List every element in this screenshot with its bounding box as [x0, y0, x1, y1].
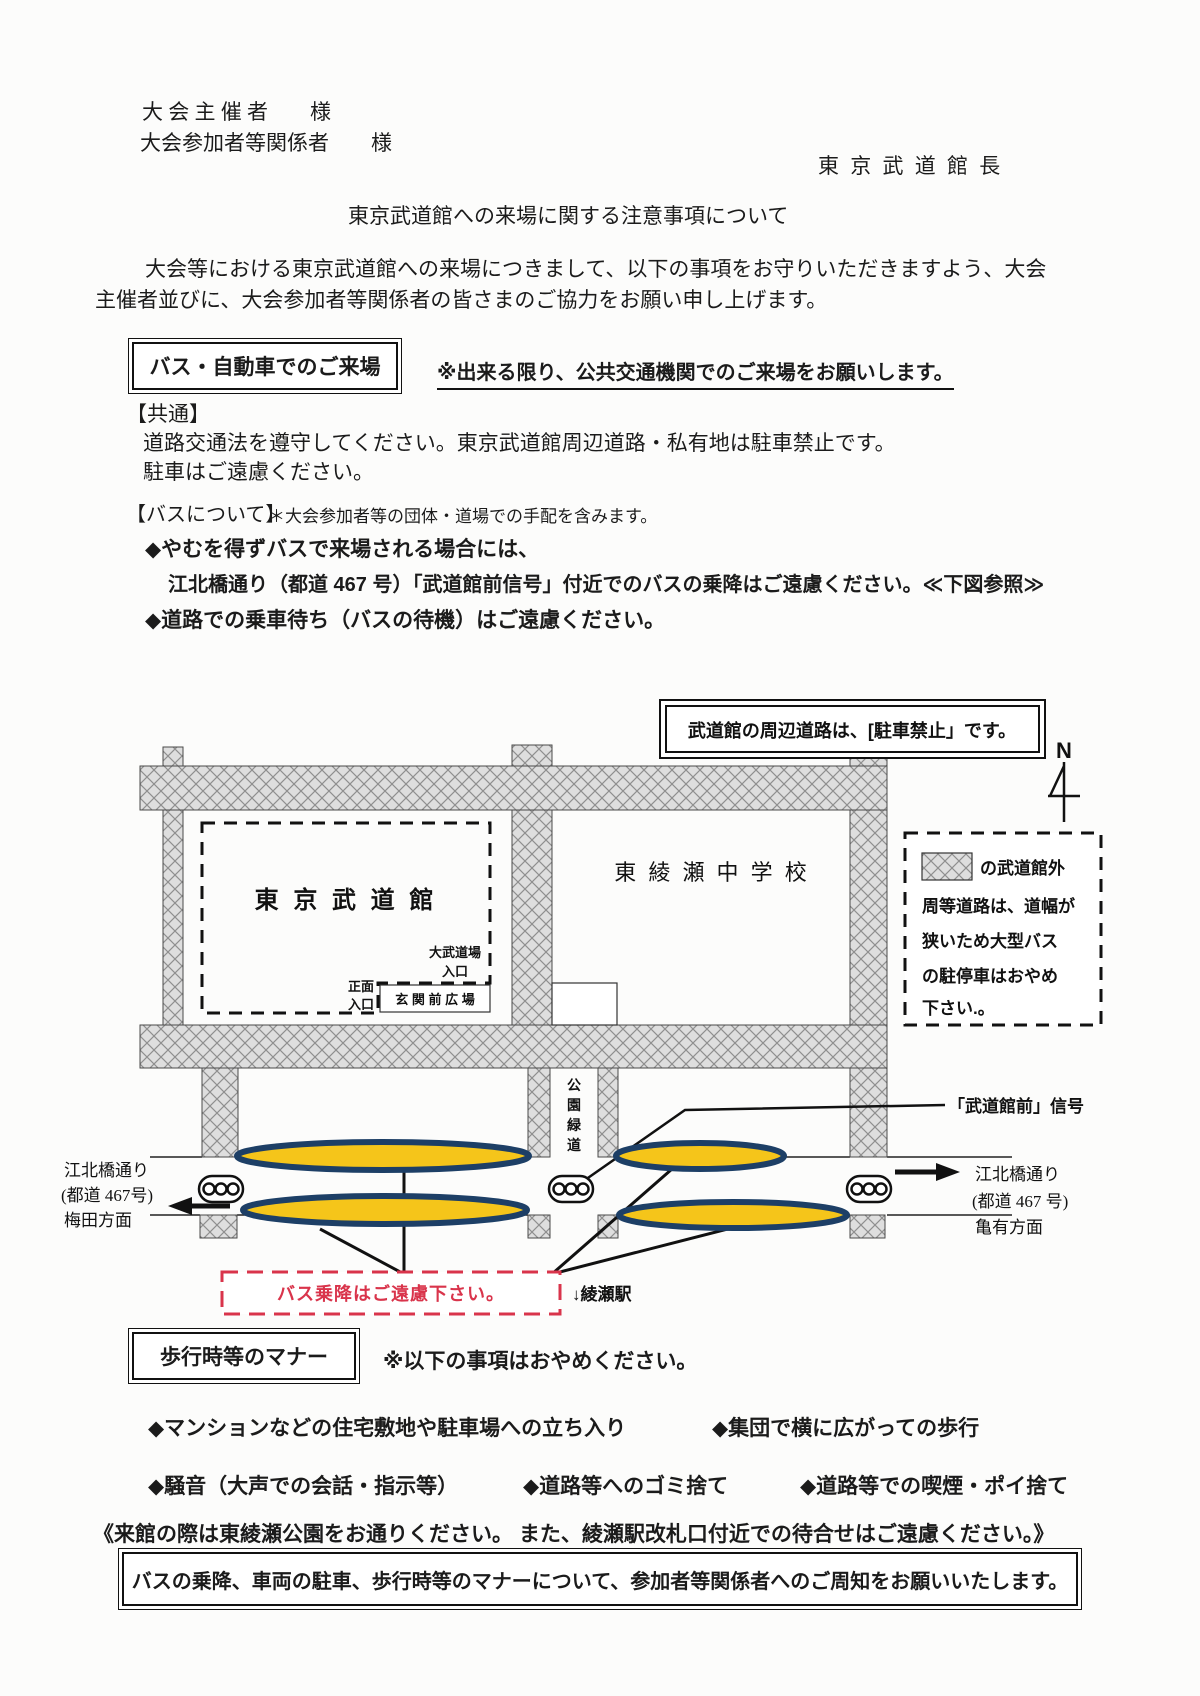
- dai-budojo-entrance-label: 大武道場: [429, 945, 481, 960]
- park-route-note: 《来館の際は東綾瀬公園をお通りください。 また、綾瀬駅改札口付近での待合せはご遠…: [93, 1518, 1054, 1548]
- manner-bullet: ◆道路等での喫煙・ポイ捨て: [800, 1470, 1068, 1500]
- road-segment: [140, 766, 887, 810]
- manner-note: ※以下の事項はおやめください。: [383, 1345, 697, 1375]
- no-bus-notice: バス乗降はご遠慮下さい。: [277, 1283, 505, 1304]
- ayase-station-label: ↓綾瀬駅: [572, 1284, 632, 1304]
- common-label: 【共通】: [126, 398, 210, 428]
- road-segment: [163, 810, 183, 1025]
- bus-bullet-1-detail: 江北橋通り（都道 467 号）「武道館前信号」付近でのバスの乗降はご遠慮ください…: [168, 568, 1044, 597]
- no-bus-zone-oval: [237, 1142, 529, 1170]
- bus-bullet-1: ◆やむを得ずバスで来場される場合には、: [145, 533, 539, 563]
- school-label: 東 綾 瀬 中 学 校: [614, 860, 810, 885]
- recipient-line-1: 大 会 主 催 者 様: [142, 96, 331, 126]
- road-segment: [850, 1068, 887, 1157]
- road-segment: [512, 745, 552, 766]
- road-segment: [528, 1068, 550, 1157]
- document-page: 大 会 主 催 者 様 大会参加者等関係者 様 東 京 武 道 館 長 東京武道…: [0, 0, 1200, 1696]
- manner-bullet: ◆マンションなどの住宅敷地や駐車場への立ち入り: [148, 1412, 626, 1442]
- no-bus-zone-oval: [619, 1202, 847, 1228]
- dai-budojo-entrance-label2: 入口: [442, 964, 468, 979]
- footer-notice-box: バスの乗降、車両の駐車、歩行時等のマナーについて、参加者等関係者へのご周知をお願…: [118, 1548, 1082, 1610]
- traffic-signal-icon: [549, 1176, 593, 1202]
- no-parking-notice: 武道館の周辺道路は、[駐車禁止」です。: [688, 720, 1016, 741]
- school-annex-box: [552, 983, 617, 1025]
- signal-label: 「武道館前」信号: [948, 1096, 1084, 1116]
- legend-line: の駐停車はおやめ: [922, 966, 1058, 986]
- compass-north-icon: [1048, 762, 1080, 822]
- road-segment: [512, 810, 552, 1025]
- budokan-label: 東 京 武 道 館: [255, 886, 438, 914]
- main-entrance-label2: 入口: [348, 997, 374, 1012]
- footer-notice: バスの乗降、車両の駐車、歩行時等のマナーについて、参加者等関係者へのご周知をお願…: [122, 1552, 1078, 1606]
- legend-line: 周等道路は、道幅が: [922, 896, 1075, 916]
- bus-section-heading-box: バス・自動車でのご来場: [128, 338, 402, 394]
- legend-line: の武道館外: [980, 858, 1065, 878]
- common-line-2: 駐車はご遠慮ください。: [143, 456, 374, 486]
- manner-bullet: ◆道路等へのゴミ捨て: [523, 1470, 728, 1500]
- sender-line: 東 京 武 道 館 長: [818, 150, 1003, 180]
- page-title: 東京武道館への来場に関する注意事項について: [348, 200, 788, 230]
- about-bus-label: 【バスについて】: [126, 498, 285, 527]
- intro-line-2: 主催者並びに、大会参加者等関係者の皆さまのご協力をお願い申し上げます。: [95, 284, 827, 314]
- road-segment: [528, 1215, 550, 1238]
- manner-section-heading-box: 歩行時等のマナー: [128, 1328, 360, 1384]
- manner-section-heading: 歩行時等のマナー: [132, 1332, 356, 1380]
- traffic-signal-icon: [199, 1176, 243, 1202]
- compass-n-label: N: [1056, 738, 1072, 763]
- right-road-label: 亀有方面: [975, 1218, 1043, 1237]
- left-road-label: 江北橋通り: [64, 1161, 149, 1180]
- recipient-line-2: 大会参加者等関係者 様: [140, 127, 392, 157]
- green-way-char: 公: [567, 1077, 581, 1093]
- legend-line: 狭いため大型バス: [921, 931, 1058, 951]
- common-line-1: 道路交通法を遵守してください。東京武道館周辺道路・私有地は駐車禁止です。: [143, 427, 896, 457]
- legend-line: 下さい.。: [922, 999, 995, 1018]
- intro-line-1: 大会等における東京武道館への来場につきまして、以下の事項をお守りいただきますよう…: [145, 253, 1046, 283]
- no-bus-zone-oval: [616, 1143, 784, 1169]
- green-way-char: 園: [567, 1097, 581, 1113]
- signal-pointer-line: [585, 1105, 945, 1180]
- right-road-label: (都道 467 号): [972, 1192, 1068, 1211]
- manner-bullet: ◆集団で横に広がっての歩行: [712, 1412, 979, 1442]
- road-segment: [598, 1068, 618, 1157]
- road-segment: [202, 1068, 238, 1157]
- green-way-char: 道: [567, 1137, 581, 1153]
- right-road-label: 江北橋通り: [975, 1165, 1060, 1184]
- plaza-label: 玄 関 前 広 場: [395, 992, 474, 1007]
- east-direction-arrow: [895, 1163, 960, 1181]
- about-bus-note: ＊大会参加者等の団体・道場での手配を含みます。: [268, 502, 657, 527]
- road-segment: [163, 747, 183, 766]
- left-road-label: (都道 467号): [61, 1186, 153, 1205]
- main-entrance-label: 正面: [348, 979, 374, 994]
- bus-section-heading: バス・自動車でのご来場: [132, 342, 398, 390]
- area-map: 東 京 武 道 館 大武道場 入口 正面 入口 玄 関 前 広 場 東 綾 瀬 …: [40, 640, 1160, 1320]
- left-road-label: 梅田方面: [64, 1211, 132, 1230]
- green-way-char: 緑: [567, 1117, 582, 1133]
- bus-bullet-2: ◆道路での乗車待ち（バスの待機）はご遠慮ください。: [145, 604, 665, 634]
- no-bus-zone-oval: [243, 1196, 527, 1224]
- traffic-signal-icon: [847, 1176, 891, 1202]
- road-segment: [200, 1215, 237, 1238]
- manner-bullet: ◆騒音（大声での会話・指示等）: [148, 1470, 458, 1500]
- public-transport-note: ※出来る限り、公共交通機関でのご来場をお願いします。: [437, 356, 954, 390]
- road-segment: [140, 1025, 887, 1068]
- road-segment: [850, 1215, 885, 1238]
- legend-hatch-swatch: [922, 853, 972, 880]
- road-segment: [850, 810, 887, 1025]
- bus-zone-pointer-line: [320, 1229, 404, 1274]
